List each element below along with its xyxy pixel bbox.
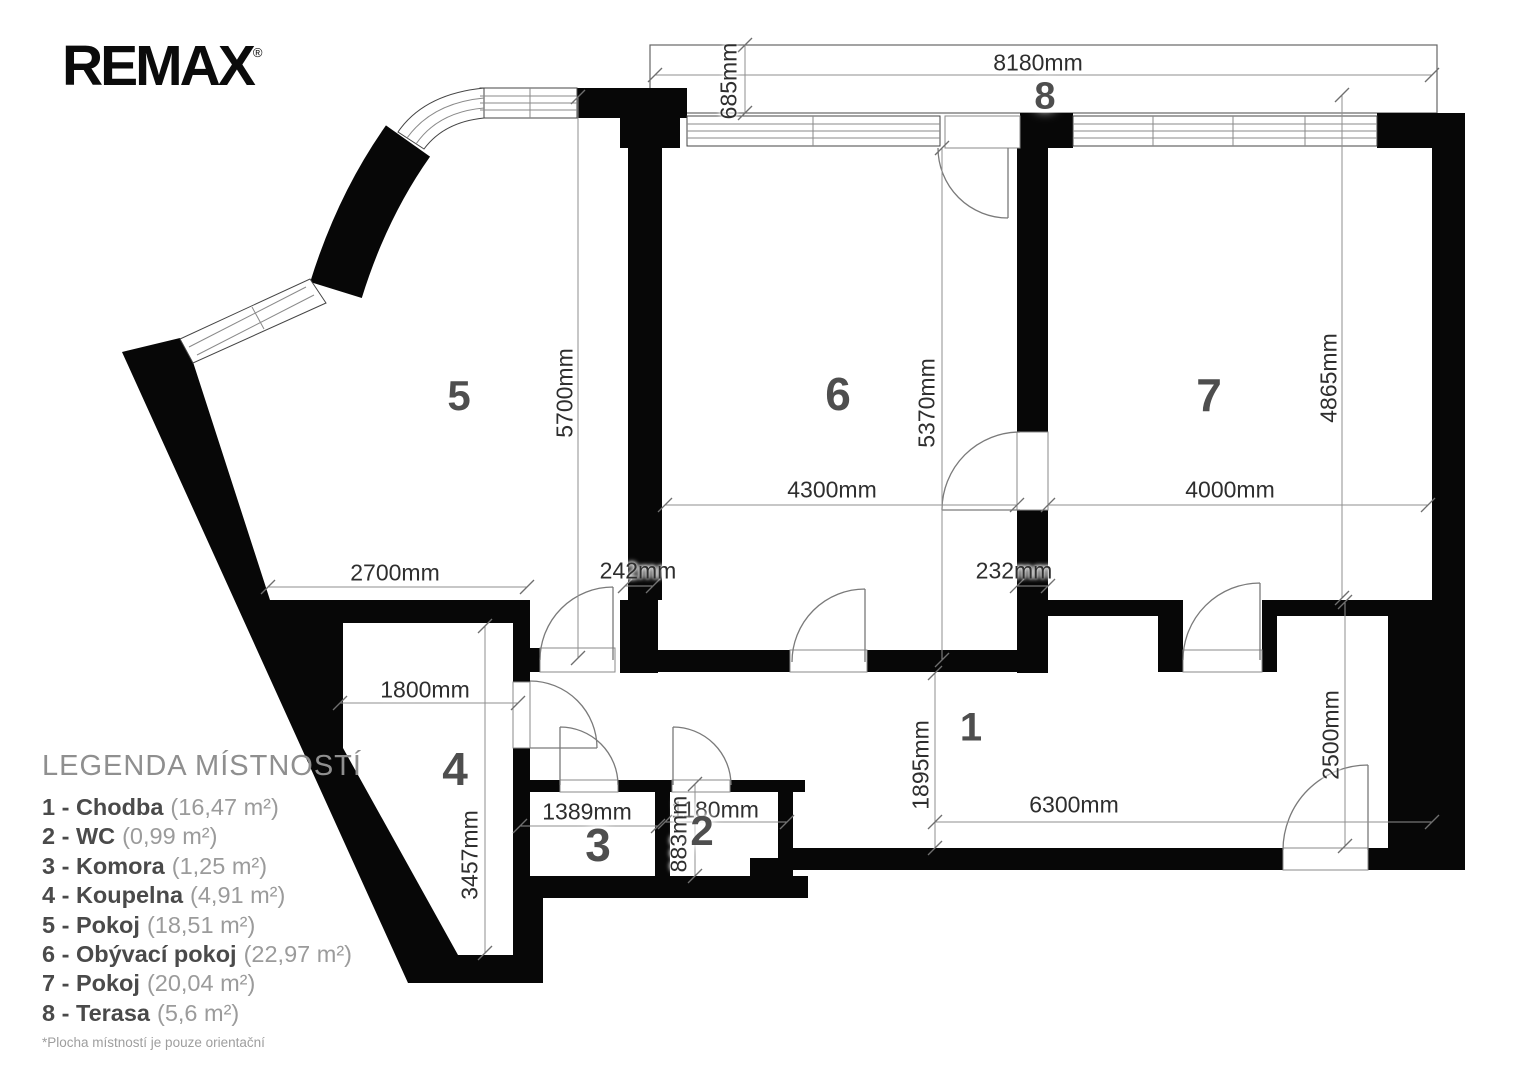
legend-item-label: 8 - Terasa (42, 1000, 150, 1026)
dim-room4-height: 3457mm (457, 810, 484, 899)
dim-room2-height: 883mm (666, 796, 693, 873)
dim-pier-56: 242mm (600, 558, 677, 585)
remax-logo-text: REMAX (62, 34, 253, 98)
legend-item-label: 4 - Koupelna (42, 882, 183, 908)
dim-hall-width: 6300mm (1029, 792, 1118, 819)
legend-item: 3 - Komora(1,25 m²) (42, 852, 382, 881)
dim-room6-height: 5370mm (914, 358, 941, 447)
legend-item-area: (22,97 m²) (244, 941, 352, 967)
dim-room7-width: 4000mm (1185, 477, 1274, 504)
legend-item-area: (5,6 m²) (157, 1000, 239, 1026)
legend-title: LEGENDA MÍSTNOSTÍ (42, 750, 382, 783)
legend-item-label: 6 - Obývací pokoj (42, 941, 237, 967)
room-number-2: 2 (690, 807, 713, 855)
dim-room5-height: 5700mm (552, 348, 579, 437)
dim-pier-67: 232mm (976, 558, 1053, 585)
legend-item-area: (18,51 m²) (147, 912, 255, 938)
legend-item-area: (20,04 m²) (147, 970, 255, 996)
room-number-4: 4 (442, 742, 468, 796)
legend-item-area: (16,47 m²) (170, 794, 278, 820)
legend-item: 5 - Pokoj(18,51 m²) (42, 911, 382, 940)
dim-room4-width: 1800mm (380, 677, 469, 704)
legend-item: 8 - Terasa(5,6 m²) (42, 999, 382, 1028)
room-number-1: 1 (960, 706, 982, 751)
legend-item: 7 - Pokoj(20,04 m²) (42, 969, 382, 998)
legend-item-label: 7 - Pokoj (42, 970, 140, 996)
dim-terrace-width: 8180mm (993, 50, 1082, 77)
legend-item-label: 3 - Komora (42, 853, 165, 879)
room-number-5: 5 (447, 372, 470, 420)
dim-hall-entry-height: 2500mm (1318, 690, 1345, 779)
dim-room6-width: 4300mm (787, 477, 876, 504)
legend-item: 4 - Koupelna(4,91 m²) (42, 881, 382, 910)
registered-mark: ® (253, 45, 263, 60)
legend-item-area: (0,99 m²) (122, 823, 217, 849)
legend-footnote: *Plocha místností je pouze orientační (42, 1035, 382, 1050)
legend-item-label: 2 - WC (42, 823, 115, 849)
dim-room7-height: 4865mm (1316, 333, 1343, 422)
legend-item: 6 - Obývací pokoj(22,97 m²) (42, 940, 382, 969)
dim-terrace-depth: 685mm (716, 43, 743, 120)
legend-item-label: 1 - Chodba (42, 794, 163, 820)
room-number-3: 3 (585, 818, 611, 872)
room-number-6: 6 (825, 367, 851, 421)
legend: LEGENDA MÍSTNOSTÍ 1 - Chodba(16,47 m²) 2… (42, 750, 382, 1050)
legend-item-area: (4,91 m²) (190, 882, 285, 908)
legend-item-label: 5 - Pokoj (42, 912, 140, 938)
legend-item: 1 - Chodba(16,47 m²) (42, 793, 382, 822)
dim-hall-height: 1895mm (908, 720, 935, 809)
floor-plan-page: REMAX® 8180mm 685mm 5700mm 4300mm 5370mm… (0, 0, 1529, 1080)
legend-item: 2 - WC(0,99 m²) (42, 822, 382, 851)
room-number-7: 7 (1196, 368, 1222, 422)
room-number-8: 8 (1034, 76, 1055, 119)
legend-item-area: (1,25 m²) (172, 853, 267, 879)
remax-logo: REMAX® (62, 38, 262, 95)
dim-room5-width: 2700mm (350, 560, 439, 587)
